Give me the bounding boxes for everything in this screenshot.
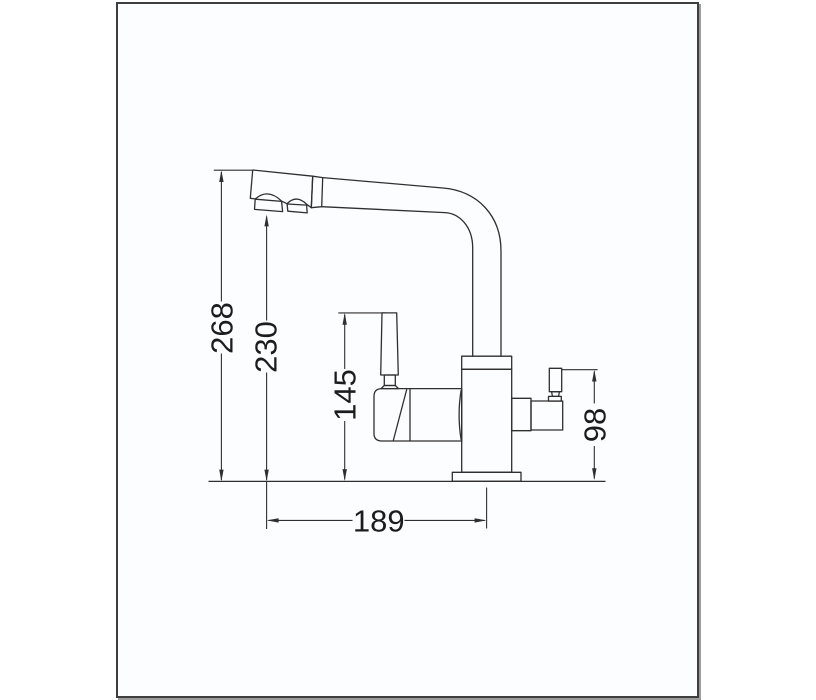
faucet-technical-drawing (0, 0, 816, 700)
spout-tube-outer (323, 178, 501, 357)
lever-neck (384, 375, 395, 386)
body-collar (462, 356, 512, 369)
arrowhead-up (264, 215, 268, 227)
body-column (462, 369, 512, 472)
filter-lever-neck (552, 392, 560, 397)
cartridge-housing (374, 389, 462, 441)
arrowhead-up (343, 313, 347, 325)
filter-valve-handle (512, 368, 563, 430)
housing-body-fillet (459, 391, 461, 440)
filter-lever-rod (549, 368, 561, 391)
arrowhead-down (343, 469, 347, 481)
arrowhead-down (264, 470, 268, 482)
dim-label-spout-outlet-height: 230 (251, 321, 282, 373)
faucet-body (452, 356, 521, 481)
spout-assembly (250, 170, 501, 356)
arrowhead-down (219, 470, 223, 482)
arrowhead-up (592, 370, 596, 382)
dim-label-filter-handle-height: 98 (579, 407, 610, 441)
arrowhead-up (219, 170, 223, 182)
base-flange (452, 472, 521, 481)
mixer-lever-handle (374, 313, 462, 441)
arrowhead-down (592, 468, 596, 480)
filter-connector (512, 398, 531, 430)
housing-seam-diagonal (393, 390, 406, 441)
dim-label-base-width: 189 (353, 505, 405, 536)
arrowhead-left (267, 518, 279, 522)
aerator-skirt-2 (287, 204, 307, 213)
drawing-canvas: 268 230 145 98 189 (0, 0, 816, 700)
dim-label-overall-height: 268 (206, 302, 237, 354)
dim-label-lever-handle-height: 145 (330, 369, 361, 421)
aerator-skirt-1 (255, 199, 283, 211)
arrowhead-right (475, 518, 487, 522)
filter-block (531, 401, 563, 430)
spout-collar-band (311, 176, 322, 208)
lever-rod (381, 313, 399, 375)
